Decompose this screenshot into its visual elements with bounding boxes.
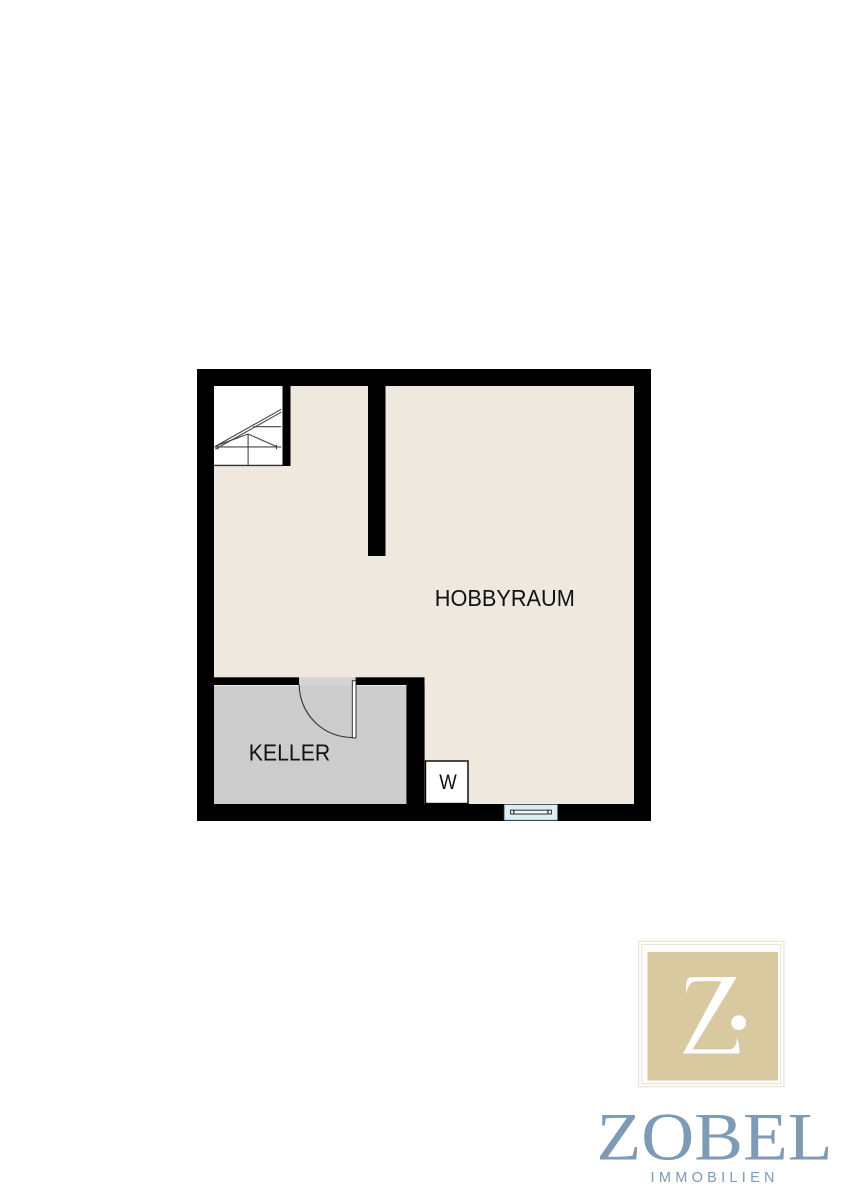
svg-text:HOBBYRAUM: HOBBYRAUM (435, 585, 575, 611)
svg-text:IMMOBILIEN: IMMOBILIEN (651, 1170, 775, 1186)
svg-text:ZOBEL: ZOBEL (597, 1099, 833, 1175)
svg-text:W: W (439, 770, 457, 794)
svg-text:KELLER: KELLER (249, 740, 331, 766)
